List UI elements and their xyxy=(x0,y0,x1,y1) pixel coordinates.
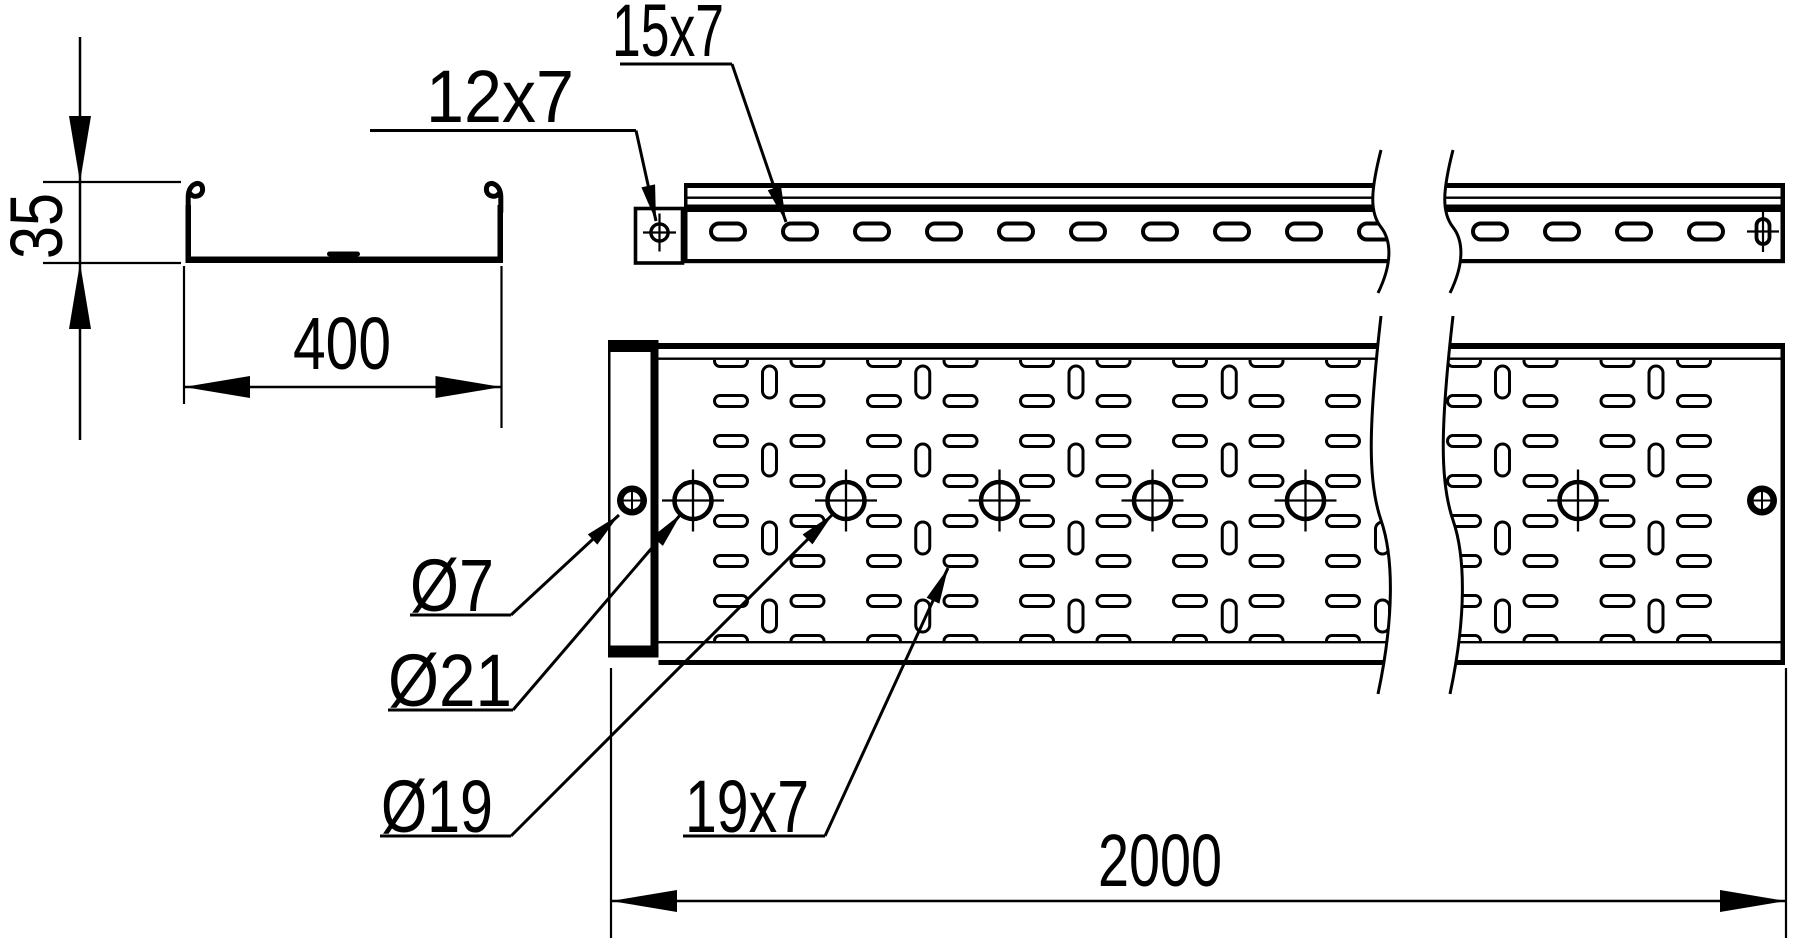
side-slot-15x7 xyxy=(855,224,889,240)
tray-slot-19x7 xyxy=(715,436,748,447)
tray-slot-19x7 xyxy=(1097,396,1130,407)
tray-slot-19x7 xyxy=(1601,396,1634,407)
side-top-edge xyxy=(684,183,1785,188)
profile-center-rib xyxy=(327,252,360,257)
tray-slot-19x7 xyxy=(791,556,824,567)
tray-slot-19x7 xyxy=(1678,516,1711,527)
side-slot-15x7 xyxy=(1071,224,1105,240)
tray-slot-19x7 xyxy=(1678,436,1711,447)
tray-slot-19x7 xyxy=(1601,436,1634,447)
side-bottom-edge xyxy=(684,259,1785,263)
side-slot-15x7 xyxy=(1617,224,1651,240)
dim-2000-label: 2000 xyxy=(1098,819,1222,902)
tray-slot-19x7 xyxy=(1021,556,1054,567)
tray-slot-19x7 xyxy=(868,436,901,447)
tray-slot-vertical xyxy=(1649,522,1663,554)
tray-slot-vertical xyxy=(1649,366,1663,398)
tray-slot-19x7 xyxy=(1678,556,1711,567)
tray-slot-19x7 xyxy=(1021,596,1054,607)
side-slot-15x7 xyxy=(927,224,961,240)
tray-slot-19x7 xyxy=(1601,556,1634,567)
tray-slot-19x7 xyxy=(1327,396,1360,407)
tray-slot-19x7 xyxy=(791,596,824,607)
tray-slot-19x7 xyxy=(1250,396,1283,407)
top-inner-bottom-line xyxy=(659,641,1786,643)
tray-slot-19x7 xyxy=(1021,516,1054,527)
tray-slot-19x7 xyxy=(1021,436,1054,447)
tray-slot-vertical xyxy=(916,366,930,398)
tray-slot-19x7 xyxy=(1174,476,1207,487)
tray-slot-vertical xyxy=(1069,366,1083,398)
tray-slot-vertical xyxy=(763,444,777,476)
tray-slot-19x7 xyxy=(715,556,748,567)
tray-slot-19x7 xyxy=(944,516,977,527)
tray-slot-19x7 xyxy=(1250,436,1283,447)
label-15x7: 15x7 xyxy=(612,0,724,72)
side-slot-15x7 xyxy=(1287,224,1321,240)
tray-slot-19x7 xyxy=(1524,396,1557,407)
tray-slot-vertical xyxy=(1069,444,1083,476)
tray-slot-vertical xyxy=(763,522,777,554)
side-slot-15x7 xyxy=(1545,224,1579,240)
tray-slot-19x7 xyxy=(791,396,824,407)
top-outer-top-edge xyxy=(659,343,1786,349)
paper-background xyxy=(0,0,1800,941)
tray-slot-19x7 xyxy=(1021,476,1054,487)
tray-slot-19x7 xyxy=(1327,556,1360,567)
tray-slot-vertical xyxy=(763,366,777,398)
plate-left-line xyxy=(608,340,611,658)
tray-slot-19x7 xyxy=(1097,476,1130,487)
side-slot-15x7 xyxy=(783,224,817,240)
tray-slot-vertical xyxy=(1496,444,1510,476)
tray-slot-vertical xyxy=(1222,444,1236,476)
tray-slot-19x7 xyxy=(1250,556,1283,567)
dim-35-label: 35 xyxy=(0,193,78,259)
tray-slot-19x7 xyxy=(1097,556,1130,567)
dim-400-label: 400 xyxy=(293,302,391,385)
tray-slot-19x7 xyxy=(1678,396,1711,407)
tray-slot-19x7 xyxy=(1174,596,1207,607)
tray-slot-19x7 xyxy=(868,516,901,527)
label-dia7: Ø7 xyxy=(410,544,494,627)
label-19x7: 19x7 xyxy=(685,765,809,848)
tray-slot-19x7 xyxy=(868,556,901,567)
tray-slot-19x7 xyxy=(944,476,977,487)
drawing-canvas: 35400200012x715x7Ø7Ø21Ø1919x7 xyxy=(0,0,1800,941)
tray-slot-19x7 xyxy=(715,516,748,527)
tray-slot-19x7 xyxy=(1021,396,1054,407)
tray-slot-19x7 xyxy=(1174,396,1207,407)
tray-slot-vertical xyxy=(1649,600,1663,632)
top-right-edge xyxy=(1781,343,1786,665)
tray-slot-19x7 xyxy=(1327,516,1360,527)
tray-slot-19x7 xyxy=(1601,476,1634,487)
tray-slot-19x7 xyxy=(868,596,901,607)
side-slot-15x7 xyxy=(1689,224,1723,240)
tray-slot-19x7 xyxy=(1524,556,1557,567)
side-flange-band xyxy=(684,205,1785,213)
cable-tray-technical-drawing: 35400200012x715x7Ø7Ø21Ø1919x7 xyxy=(0,0,1800,941)
tray-slot-19x7 xyxy=(1174,436,1207,447)
tray-slot-19x7 xyxy=(944,396,977,407)
tray-slot-19x7 xyxy=(1601,596,1634,607)
tray-slot-19x7 xyxy=(1448,476,1481,487)
tray-slot-19x7 xyxy=(1327,596,1360,607)
tray-slot-19x7 xyxy=(1174,556,1207,567)
side-slot-15x7 xyxy=(711,224,745,240)
tray-slot-19x7 xyxy=(1327,476,1360,487)
label-12x7: 12x7 xyxy=(426,55,574,138)
tray-slot-vertical xyxy=(1222,522,1236,554)
tray-slot-19x7 xyxy=(1524,596,1557,607)
tray-slot-19x7 xyxy=(1524,476,1557,487)
tray-slot-19x7 xyxy=(944,556,977,567)
tray-slot-19x7 xyxy=(868,396,901,407)
label-dia19: Ø19 xyxy=(381,765,493,848)
tray-slot-19x7 xyxy=(1250,476,1283,487)
tray-slot-19x7 xyxy=(1524,436,1557,447)
top-outer-bottom-edge xyxy=(659,660,1786,665)
tray-slot-vertical xyxy=(1649,444,1663,476)
tray-slot-19x7 xyxy=(791,476,824,487)
top-inner-top-line xyxy=(659,358,1786,360)
side-slot-15x7 xyxy=(1473,224,1507,240)
tray-slot-19x7 xyxy=(1250,516,1283,527)
tray-slot-vertical xyxy=(1496,522,1510,554)
tray-slot-vertical xyxy=(916,444,930,476)
side-slot-15x7 xyxy=(1143,224,1177,240)
tray-slot-19x7 xyxy=(715,476,748,487)
tray-slot-19x7 xyxy=(1174,516,1207,527)
profile-floor xyxy=(186,257,504,264)
tray-slot-19x7 xyxy=(1097,596,1130,607)
side-fold-line xyxy=(684,197,1785,199)
side-left-edge xyxy=(684,183,688,263)
label-dia21: Ø21 xyxy=(388,639,512,722)
tray-slot-vertical xyxy=(1069,600,1083,632)
tray-slot-vertical xyxy=(916,600,930,632)
tray-slot-vertical xyxy=(1496,366,1510,398)
tray-slot-19x7 xyxy=(1448,436,1481,447)
tray-slot-19x7 xyxy=(1097,516,1130,527)
plate-right-bar xyxy=(651,340,659,658)
side-slot-15x7 xyxy=(999,224,1033,240)
tray-slot-vertical xyxy=(1222,366,1236,398)
tray-slot-19x7 xyxy=(1524,516,1557,527)
tray-slot-vertical xyxy=(763,600,777,632)
tray-slot-19x7 xyxy=(1327,436,1360,447)
tray-slot-19x7 xyxy=(1678,476,1711,487)
tray-slot-19x7 xyxy=(1678,596,1711,607)
tray-slot-19x7 xyxy=(1097,436,1130,447)
tray-slot-19x7 xyxy=(1601,516,1634,527)
tray-slot-19x7 xyxy=(1448,396,1481,407)
tray-slot-vertical xyxy=(1496,600,1510,632)
tray-slot-vertical xyxy=(1222,600,1236,632)
tray-slot-19x7 xyxy=(944,436,977,447)
tray-slot-vertical xyxy=(916,522,930,554)
side-right-edge xyxy=(1781,183,1786,263)
side-slot-15x7 xyxy=(1215,224,1249,240)
tray-slot-19x7 xyxy=(1250,596,1283,607)
tray-slot-19x7 xyxy=(944,596,977,607)
tray-slot-19x7 xyxy=(791,436,824,447)
tray-slot-19x7 xyxy=(715,396,748,407)
tray-slot-vertical xyxy=(1069,522,1083,554)
tray-slot-19x7 xyxy=(868,476,901,487)
